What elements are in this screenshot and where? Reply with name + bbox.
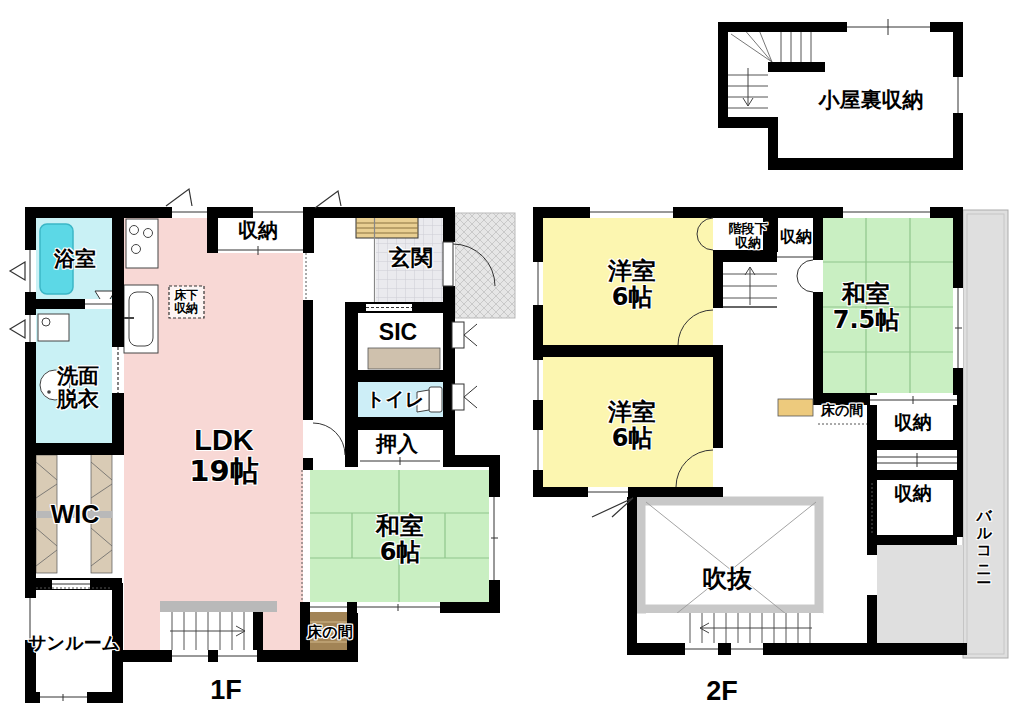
wic-label: WIC xyxy=(51,501,100,528)
sic-cabinet-icon xyxy=(368,348,440,369)
understair-storage-label: 階段下 収納 xyxy=(729,222,768,250)
roof-mark xyxy=(592,498,633,517)
floor1-tag: 1F xyxy=(210,676,242,705)
casement-window-1 xyxy=(452,322,464,348)
toilet-icon xyxy=(429,387,442,412)
washitsu2-door-arc-1 xyxy=(797,260,813,276)
ldk-label: LDK 19帖 xyxy=(189,425,258,488)
tokonoma-shelf-icon xyxy=(778,399,813,416)
floor-plan: 浴室 洗面 脱衣 WIC サンルーム LDK 19帖 収納 床下 収納 玄関 S… xyxy=(0,0,1024,726)
ldk-hall-door-arc xyxy=(313,423,345,455)
yoshitsu2-label: 洋室 6帖 xyxy=(608,400,656,452)
bath-label: 浴室 xyxy=(54,248,96,271)
casement-window-2 xyxy=(452,384,464,410)
oshiire-label: 押入 xyxy=(376,433,418,456)
storage-top-label: 収納 xyxy=(238,220,278,242)
attic-storage-label: 小屋裏収納 xyxy=(819,89,924,112)
sic-label: SIC xyxy=(379,320,417,345)
floor2-upper-stairs xyxy=(723,262,777,307)
toilet-label: トイレ xyxy=(366,389,424,410)
storage-c-label: 収納 xyxy=(894,483,932,504)
sunroom-label: サンルーム xyxy=(28,633,120,652)
tokonoma1-label: 床の間 xyxy=(307,624,352,640)
yoshitsu1-label: 洋室 6帖 xyxy=(608,259,656,311)
underfloor-label: 床下 収納 xyxy=(174,289,198,315)
floor2-tag: 2F xyxy=(706,677,738,706)
washroom-label: 洗面 脱衣 xyxy=(57,365,99,410)
washitsu1-label: 和室 6帖 xyxy=(376,514,424,566)
floor2-stairs xyxy=(646,613,823,643)
storage-a-label: 収納 xyxy=(780,228,812,245)
void-label: 吹抜 xyxy=(702,565,752,592)
genkan-label: 玄関 xyxy=(389,246,433,270)
balcony-label: バルコニー xyxy=(976,498,992,576)
vanity-icon xyxy=(38,314,69,341)
balcony-strip xyxy=(963,210,1008,658)
washitsu2-door-arc-2 xyxy=(797,276,813,292)
washitsu2-label: 和室 7.5帖 xyxy=(833,282,900,334)
balcony-notch xyxy=(877,545,963,643)
entrance-door-leaf xyxy=(443,242,453,286)
storage-b-label: 収納 xyxy=(894,412,932,433)
tokonoma2-label: 床の間 xyxy=(821,403,863,418)
